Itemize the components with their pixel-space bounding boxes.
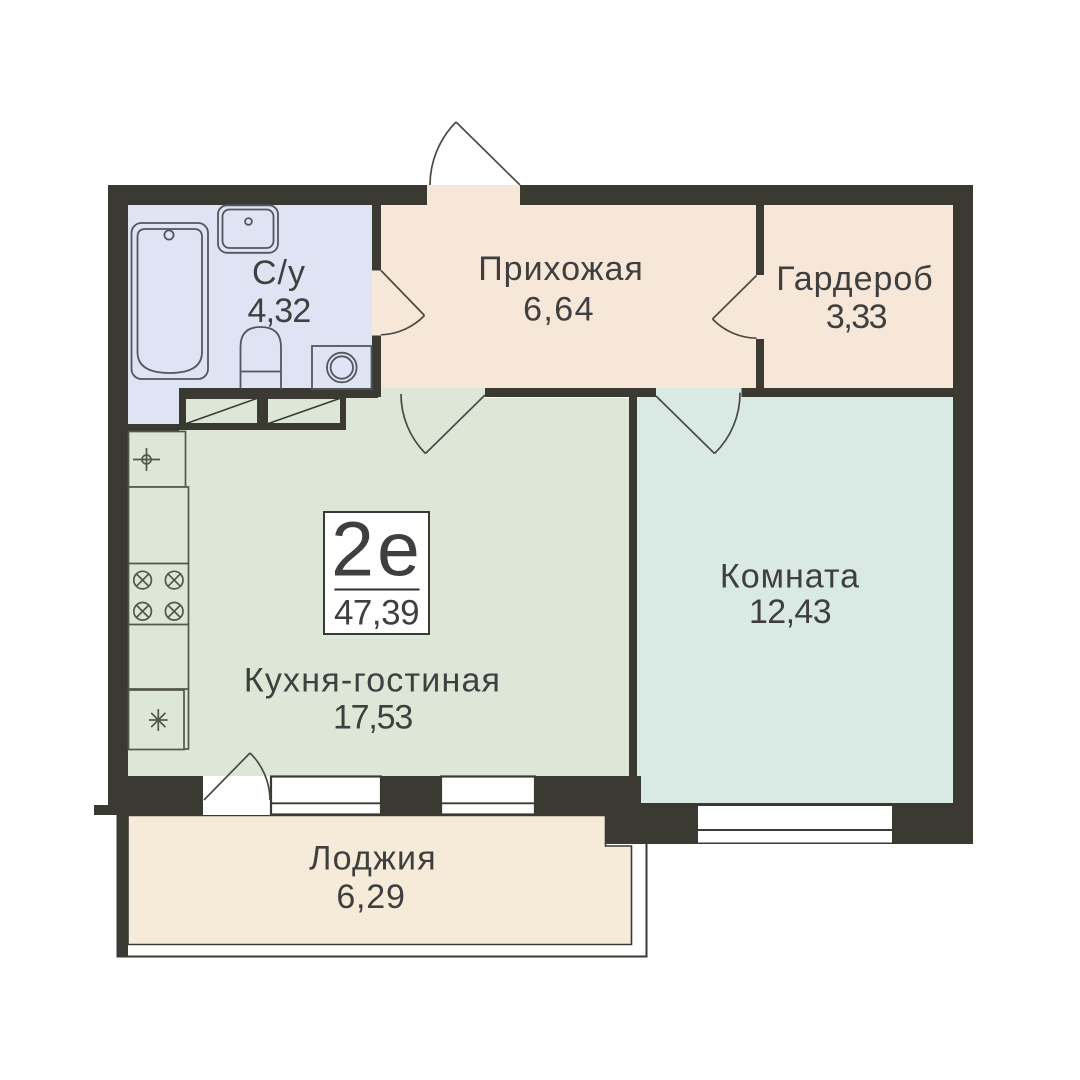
svg-text:Гардероб: Гардероб (776, 260, 934, 298)
svg-text:2е: 2е (331, 507, 423, 593)
svg-text:С/у: С/у (252, 254, 306, 292)
svg-text:6,64: 6,64 (523, 291, 595, 329)
svg-text:12,43: 12,43 (749, 593, 831, 631)
svg-text:4,32: 4,32 (248, 292, 311, 330)
svg-text:17,53: 17,53 (333, 699, 412, 737)
svg-text:Кухня-гостиная: Кухня-гостиная (244, 662, 501, 700)
svg-text:Комната: Комната (720, 558, 860, 596)
svg-text:3,33: 3,33 (826, 298, 887, 336)
svg-text:6,29: 6,29 (336, 878, 405, 916)
svg-text:Лоджия: Лоджия (309, 840, 437, 878)
svg-text:Прихожая: Прихожая (478, 250, 644, 288)
svg-text:47,39: 47,39 (334, 594, 419, 633)
